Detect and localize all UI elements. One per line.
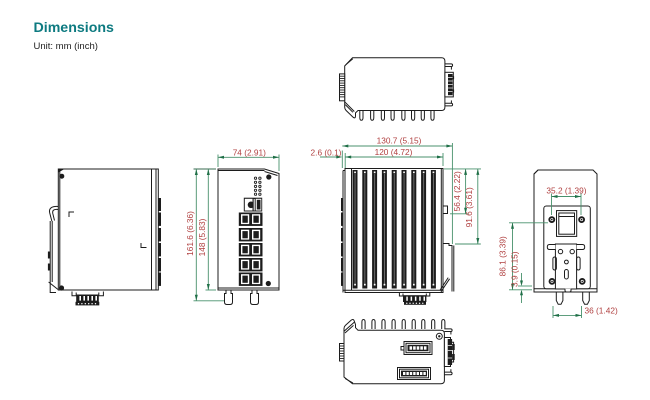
svg-text:130.7 (5.15): 130.7 (5.15) — [377, 136, 422, 146]
svg-text:Dimensions: Dimensions — [34, 20, 115, 36]
svg-text:35.2 (1.39): 35.2 (1.39) — [546, 186, 586, 196]
svg-text:74 (2.91): 74 (2.91) — [233, 147, 266, 157]
svg-text:36 (1.42): 36 (1.42) — [585, 305, 618, 315]
svg-text:Unit: mm (inch): Unit: mm (inch) — [34, 41, 98, 52]
svg-text:148 (5.83): 148 (5.83) — [197, 218, 207, 256]
svg-text:3.9 (0.15): 3.9 (0.15) — [509, 251, 519, 287]
svg-text:91.6 (3.61): 91.6 (3.61) — [464, 187, 474, 227]
svg-text:2.6 (0.1): 2.6 (0.1) — [311, 147, 342, 157]
svg-text:56.4 (2.22): 56.4 (2.22) — [452, 171, 462, 211]
svg-text:86.1 (3.39): 86.1 (3.39) — [498, 236, 508, 276]
svg-text:120 (4.72): 120 (4.72) — [375, 147, 413, 157]
svg-text:161.6 (6.36): 161.6 (6.36) — [185, 211, 195, 256]
